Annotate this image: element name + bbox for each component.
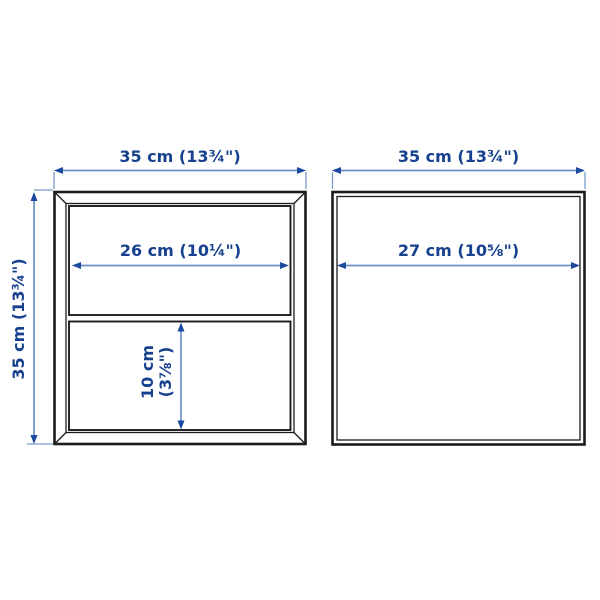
left-unit-compartment-height-label-line1: 10 cm bbox=[138, 345, 157, 399]
left-unit-compartment-height-label-line2: (3⅞") bbox=[156, 347, 175, 398]
right-unit-inner-width-label: 27 cm (10⅝") bbox=[398, 241, 519, 260]
left-unit-bottom-compartment bbox=[69, 322, 291, 431]
left-unit-height-dimension: 35 cm (13¾") bbox=[9, 190, 53, 444]
arrow-right-icon bbox=[576, 167, 585, 174]
right-unit-width-dimension: 35 cm (13¾") bbox=[332, 147, 585, 189]
arrow-left-icon bbox=[332, 167, 341, 174]
left-unit-width-dimension: 35 cm (13¾") bbox=[54, 147, 306, 189]
dimension-diagram: 35 cm (13¾") 35 cm (13¾") 26 cm (10¼") 1… bbox=[0, 0, 600, 600]
arrow-left-icon bbox=[54, 167, 63, 174]
right-unit-width-label: 35 cm (13¾") bbox=[398, 147, 519, 166]
arrow-right-icon bbox=[297, 167, 306, 174]
left-unit-height-label: 35 cm (13¾") bbox=[9, 258, 28, 379]
right-unit bbox=[333, 192, 585, 445]
arrow-up-icon bbox=[31, 192, 38, 201]
left-unit-top-compartment bbox=[69, 206, 291, 315]
left-unit-width-label: 35 cm (13¾") bbox=[119, 147, 240, 166]
left-unit-shelf-width-label: 26 cm (10¼") bbox=[120, 241, 241, 260]
diagram-canvas: 35 cm (13¾") 35 cm (13¾") 26 cm (10¼") 1… bbox=[0, 0, 600, 600]
right-unit-outer-frame bbox=[333, 192, 585, 445]
left-unit bbox=[55, 192, 306, 444]
arrow-down-icon bbox=[31, 435, 38, 444]
